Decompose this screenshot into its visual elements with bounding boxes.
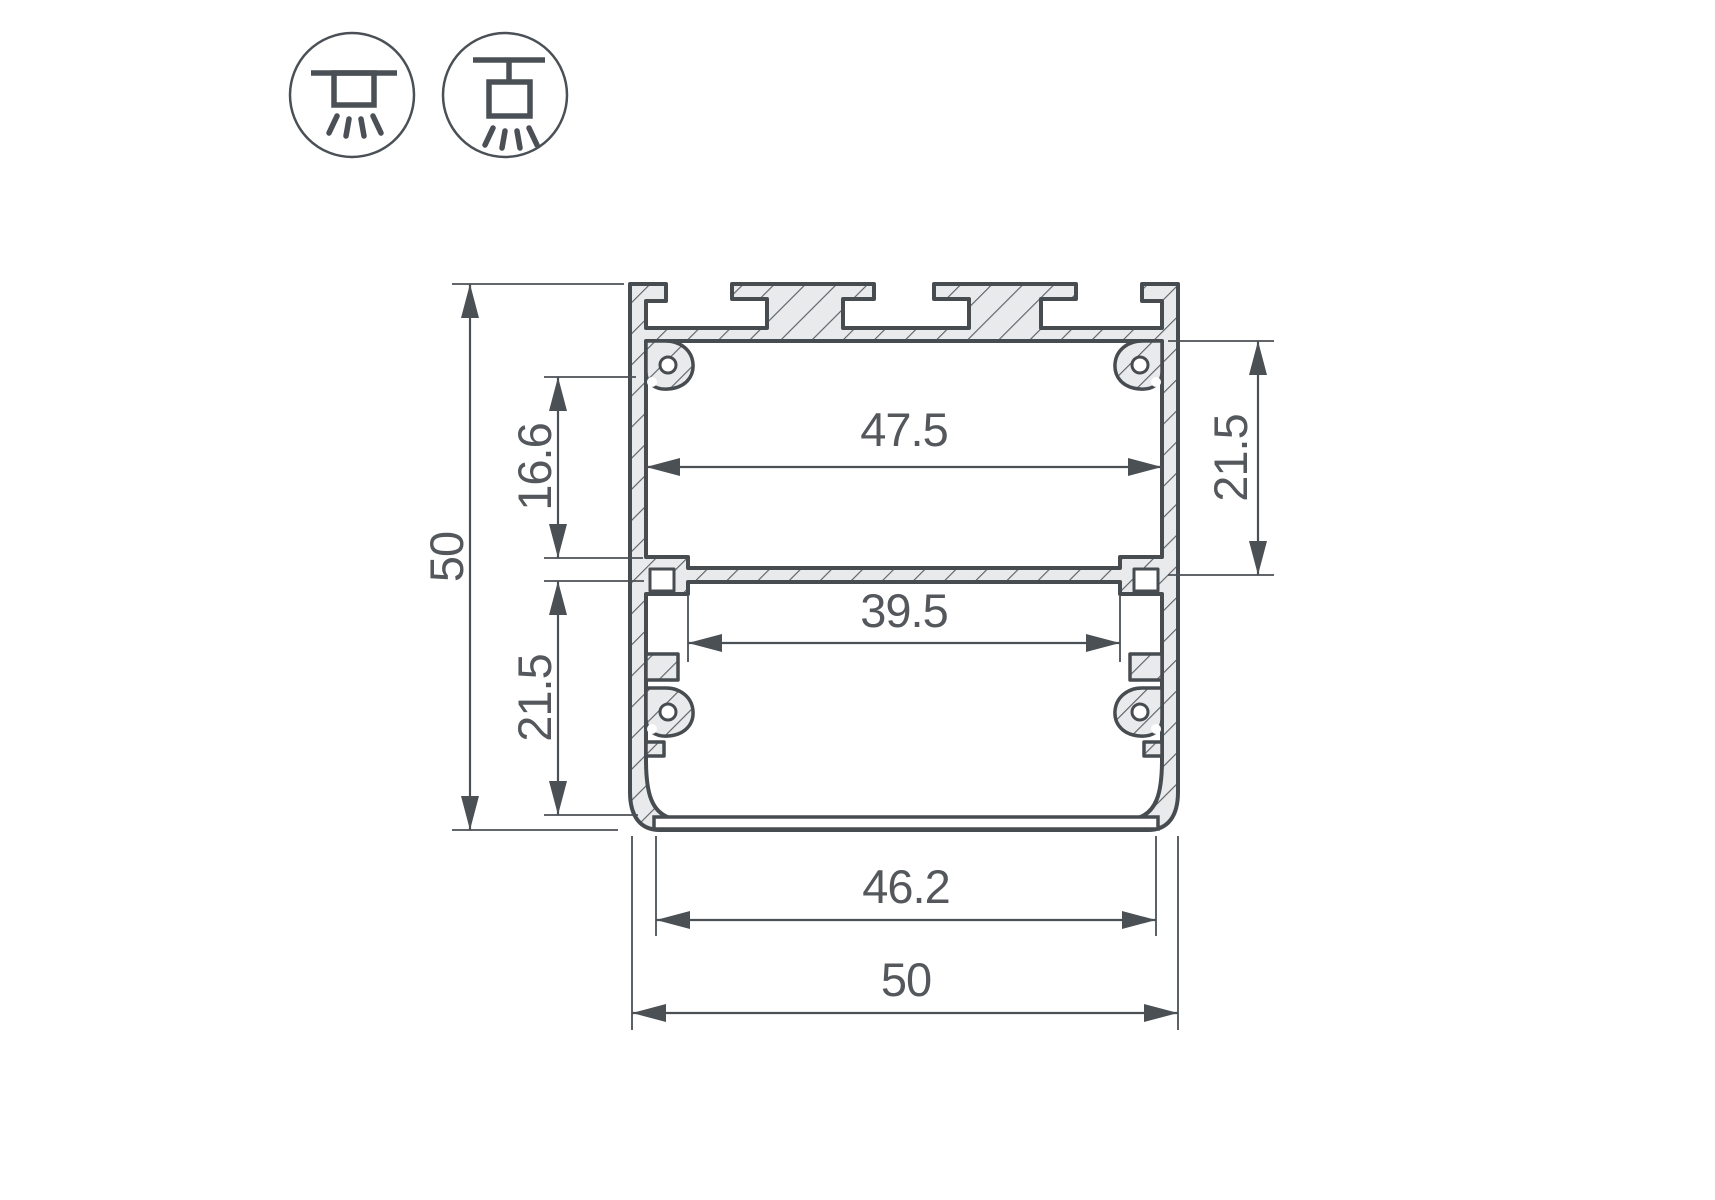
diffuser-plate xyxy=(654,817,1158,829)
screw-boss-top-left xyxy=(646,341,693,389)
surface-mount-icon xyxy=(290,33,414,157)
shelf-hook-gap-right xyxy=(1134,569,1158,591)
arrowhead xyxy=(688,634,722,652)
dimension-label: 21.5 xyxy=(1204,414,1257,501)
arrowhead xyxy=(1086,634,1120,652)
dimension-label: 47.5 xyxy=(860,403,947,456)
dimension-opening-width-bottom: 46.2 xyxy=(656,836,1156,936)
retainer-finger-right xyxy=(1144,742,1162,756)
arrowhead xyxy=(632,1004,666,1022)
mount-type-icons xyxy=(290,33,567,157)
light-rays-icon xyxy=(329,116,381,136)
dimension-label: 50 xyxy=(881,953,931,1006)
arrowhead xyxy=(549,377,567,411)
arrowhead xyxy=(656,911,690,929)
dimension-label: 46.2 xyxy=(862,860,949,913)
profile-body xyxy=(630,284,1178,830)
channel-arm-right xyxy=(1130,654,1162,680)
arrowhead xyxy=(1249,541,1267,575)
dimension-label: 21.5 xyxy=(508,654,561,741)
dimension-inner-width-top: 47.5 xyxy=(646,403,1162,476)
profile-cross-section xyxy=(630,284,1178,830)
screw-boss-mid-right xyxy=(1115,688,1162,736)
shelf-hook-gap-left xyxy=(650,569,674,591)
screw-boss-mid-left xyxy=(646,688,693,736)
screw-boss-top-right xyxy=(1115,341,1162,389)
arrowhead xyxy=(646,458,680,476)
icon-circle xyxy=(290,33,414,157)
light-rays-icon xyxy=(485,128,537,148)
arrowhead xyxy=(461,284,479,318)
dimension-upper-inner-height: 16.6 xyxy=(508,377,643,558)
pendant-mount-icon xyxy=(443,33,567,157)
profile-box xyxy=(489,82,530,116)
dimension-inner-width-mid: 39.5 xyxy=(688,584,1120,662)
arrowhead xyxy=(549,581,567,615)
arrowhead xyxy=(1128,458,1162,476)
profile-box xyxy=(334,73,374,105)
arrowhead xyxy=(549,524,567,558)
arrowhead xyxy=(549,781,567,815)
arrowhead xyxy=(461,796,479,830)
retainer-finger-left xyxy=(646,742,664,756)
technical-drawing: 50 16.6 21.5 47.5 21.5 xyxy=(0,0,1715,1200)
dimension-label: 39.5 xyxy=(860,584,947,637)
dimension-label: 50 xyxy=(420,532,473,582)
dimension-lower-inner-height-left: 21.5 xyxy=(508,581,644,815)
dimension-overall-height: 50 xyxy=(420,284,624,830)
arrowhead xyxy=(1249,341,1267,375)
arrowhead xyxy=(1122,911,1156,929)
arrowhead xyxy=(1144,1004,1178,1022)
channel-arm-left xyxy=(646,654,678,680)
dimension-label: 16.6 xyxy=(508,423,561,510)
dimension-inner-height-right: 21.5 xyxy=(1168,341,1274,575)
